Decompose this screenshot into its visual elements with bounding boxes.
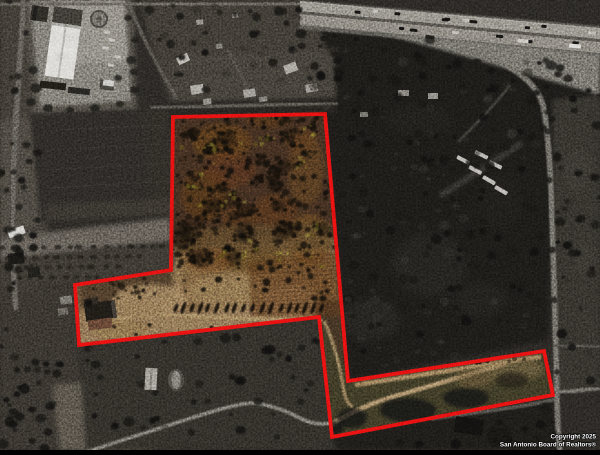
svg-text:Copyright 2025: Copyright 2025 [551,434,597,441]
svg-text:San Antonio Board of Realtors®: San Antonio Board of Realtors® [500,441,596,449]
